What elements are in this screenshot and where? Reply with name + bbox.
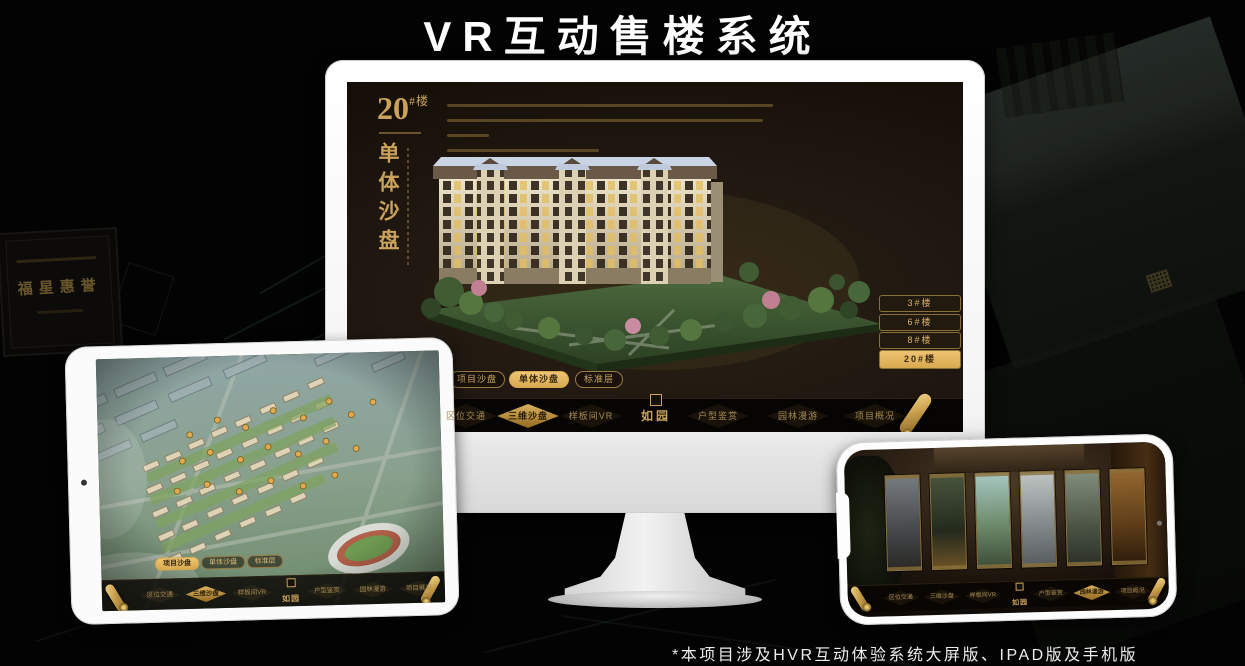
brand-logo: 如园 (1007, 582, 1032, 610)
monitor-stand (550, 513, 760, 599)
nav-item-project-overview[interactable]: 项目概况 (1115, 585, 1151, 598)
headline-vertical-rule (407, 148, 409, 268)
brand-logo: 如园 (634, 394, 678, 425)
nav-item-showroom-vr[interactable]: 样板间VR (965, 589, 1001, 602)
plaque-title: 福星惠誉 (1, 273, 118, 300)
intro-text-line (447, 134, 489, 137)
phone-screen: 区位交通 三维沙盘 样板间VR 如园 户型鉴赏 园林漫游 项目概况 (844, 442, 1170, 618)
gallery-panel[interactable] (1019, 471, 1057, 568)
building-number: 20 (377, 90, 409, 126)
headline-vertical-subtitle: 单体沙盘 (373, 142, 403, 258)
nav-item-3d-sandbox[interactable]: 三维沙盘 (497, 407, 559, 425)
nav-item-showroom-vr[interactable]: 样板间VR (232, 586, 272, 600)
floor-button-3[interactable]: 3#楼 (879, 295, 961, 312)
building-number-suffix: #楼 (409, 94, 429, 108)
tablet-screen: 项目沙盘 单体沙盘 标准层 区位交通 三维沙盘 样板间VR 如园 户型鉴赏 园林… (96, 350, 445, 611)
building-headline: 20#楼 (377, 90, 429, 127)
stage: 福星惠誉 VR互动售楼系统 20#楼 单体沙盘 (0, 0, 1245, 666)
footnote-text: *本项目涉及HVR互动体验系统大屏版、IPAD版及手机版 (672, 641, 1138, 665)
scroll-handle-icon[interactable] (104, 583, 127, 611)
background-plaque: 福星惠誉 (0, 227, 123, 357)
intro-text-line (447, 104, 773, 107)
phone-device: 区位交通 三维沙盘 样板间VR 如园 户型鉴赏 园林漫游 项目概况 (836, 433, 1178, 625)
gallery-panel[interactable] (1064, 469, 1102, 566)
brand-seal-icon (1015, 583, 1023, 591)
tab-standard-floor[interactable]: 标准层 (575, 371, 623, 388)
nav-item-floorplans[interactable]: 户型鉴赏 (307, 584, 347, 598)
nav-item-garden-roam[interactable]: 园林漫游 (353, 583, 393, 597)
phone-notch (836, 492, 851, 558)
intro-text-line (447, 119, 763, 122)
brand-logo-text: 如园 (282, 594, 300, 603)
brand-logo-text: 如园 (641, 409, 671, 423)
monitor-base (548, 591, 762, 608)
interior-ceiling (934, 444, 1085, 474)
nav-item-3d-sandbox[interactable]: 三维沙盘 (186, 587, 226, 601)
brand-logo: 如园 (278, 578, 305, 607)
page-title: VR互动售楼系统 (0, 3, 1245, 64)
floor-button-6[interactable]: 6#楼 (879, 314, 961, 331)
nav-item-location[interactable]: 区位交通 (140, 588, 180, 602)
nav-item-garden-roam[interactable]: 园林漫游 (767, 407, 829, 425)
tablet-camera-dot (81, 480, 87, 486)
nav-item-location[interactable]: 区位交通 (883, 591, 919, 604)
gallery-panel[interactable] (929, 473, 967, 570)
gallery-panel[interactable] (974, 472, 1012, 569)
nav-item-project-overview[interactable]: 项目概况 (844, 407, 906, 425)
brand-logo-text: 如园 (1012, 599, 1028, 606)
nav-item-3d-sandbox[interactable]: 三维沙盘 (924, 590, 960, 603)
nav-item-floorplans[interactable]: 户型鉴赏 (1033, 587, 1069, 600)
nav-item-showroom-vr[interactable]: 样板间VR (560, 407, 622, 425)
tablet-device: 项目沙盘 单体沙盘 标准层 区位交通 三维沙盘 样板间VR 如园 户型鉴赏 园林… (64, 337, 459, 625)
tab-project-sandbox[interactable]: 项目沙盘 (449, 371, 505, 388)
floor-button-20[interactable]: 20#楼 (879, 350, 961, 369)
brand-seal-icon (286, 578, 295, 587)
nav-item-floorplans[interactable]: 户型鉴赏 (687, 407, 749, 425)
nav-item-garden-roam[interactable]: 园林漫游 (1074, 586, 1110, 599)
tablet-tab-single-sandbox[interactable]: 单体沙盘 (201, 555, 245, 569)
gallery-panel[interactable] (1109, 468, 1147, 565)
building-3d-model[interactable] (419, 140, 889, 385)
floor-button-8[interactable]: 8#楼 (879, 332, 961, 349)
tablet-tab-standard-floor[interactable]: 标准层 (247, 554, 283, 568)
headline-rule (379, 132, 421, 134)
plaque-small-text-rule (37, 309, 83, 314)
brand-seal-icon (650, 394, 662, 406)
scroll-handle-icon[interactable] (849, 585, 870, 612)
plaque-small-text-rule (16, 256, 96, 263)
gallery-panel[interactable] (884, 474, 922, 571)
tablet-tab-project-sandbox[interactable]: 项目沙盘 (155, 557, 199, 571)
tab-single-sandbox[interactable]: 单体沙盘 (509, 371, 569, 388)
phone-camera-dot (1157, 521, 1162, 526)
